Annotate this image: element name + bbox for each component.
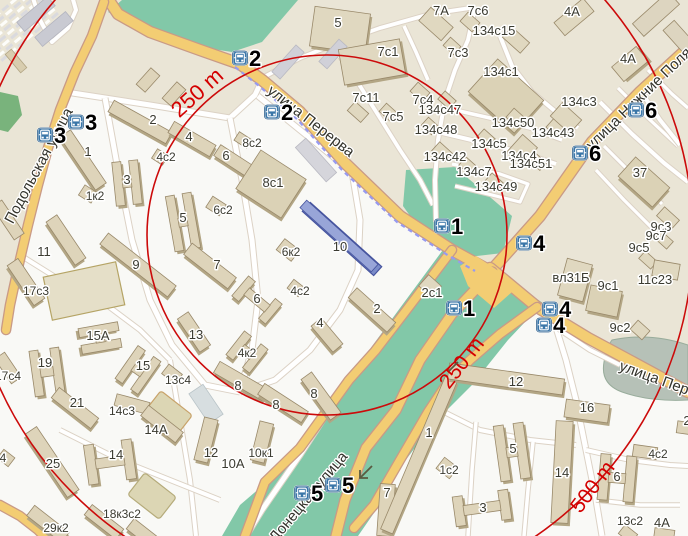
svg-text:12: 12 — [204, 445, 218, 460]
svg-text:7: 7 — [213, 257, 220, 272]
svg-text:9: 9 — [132, 257, 139, 272]
svg-text:11c23: 11c23 — [638, 272, 672, 287]
svg-text:134c49: 134c49 — [475, 179, 518, 194]
svg-text:14A: 14A — [144, 422, 167, 437]
svg-text:3: 3 — [85, 110, 97, 135]
svg-text:134c50: 134c50 — [492, 115, 535, 130]
svg-text:13: 13 — [189, 327, 203, 342]
svg-text:8: 8 — [234, 378, 241, 393]
svg-text:16: 16 — [580, 400, 594, 415]
svg-text:134c43: 134c43 — [532, 125, 575, 140]
svg-text:10: 10 — [333, 239, 347, 254]
svg-text:4A: 4A — [654, 515, 670, 530]
svg-text:2: 2 — [683, 413, 688, 428]
svg-text:10к1: 10к1 — [248, 446, 274, 460]
svg-text:1: 1 — [84, 144, 91, 159]
svg-text:7: 7 — [383, 485, 390, 500]
svg-text:7A: 7A — [433, 3, 449, 18]
svg-text:134c48: 134c48 — [415, 122, 458, 137]
svg-text:9c1: 9c1 — [598, 278, 619, 293]
svg-text:2: 2 — [281, 100, 293, 125]
svg-text:37: 37 — [633, 165, 647, 180]
svg-text:1к2: 1к2 — [86, 189, 105, 203]
svg-text:8: 8 — [272, 397, 279, 412]
svg-text:9c5: 9c5 — [629, 240, 650, 255]
svg-text:вл31Б: вл31Б — [552, 270, 589, 285]
svg-text:1c2: 1c2 — [439, 463, 459, 477]
svg-text:19: 19 — [38, 355, 52, 370]
svg-text:3: 3 — [479, 500, 486, 515]
svg-text:5: 5 — [334, 15, 341, 30]
svg-text:2: 2 — [373, 301, 380, 316]
svg-text:4к2: 4к2 — [238, 346, 257, 360]
svg-text:134c15: 134c15 — [473, 23, 516, 38]
svg-text:17c3: 17c3 — [23, 284, 49, 298]
svg-text:8c2: 8c2 — [242, 136, 262, 150]
svg-text:7c5: 7c5 — [383, 109, 404, 124]
svg-text:134c47: 134c47 — [419, 102, 462, 117]
svg-text:4c2: 4c2 — [290, 284, 310, 298]
svg-text:134c3: 134c3 — [561, 94, 596, 109]
svg-text:4: 4 — [0, 451, 7, 465]
svg-text:3: 3 — [123, 172, 130, 187]
svg-text:5: 5 — [509, 441, 516, 456]
svg-text:6: 6 — [645, 98, 657, 123]
svg-text:7c6: 7c6 — [468, 3, 489, 18]
svg-text:21: 21 — [70, 395, 84, 410]
svg-text:134c7: 134c7 — [456, 164, 491, 179]
svg-text:6: 6 — [589, 141, 601, 166]
svg-text:4: 4 — [553, 313, 566, 338]
svg-text:6к2: 6к2 — [282, 245, 301, 259]
svg-text:18к3с2: 18к3с2 — [103, 507, 141, 521]
svg-text:4A: 4A — [620, 51, 636, 66]
svg-text:11: 11 — [37, 244, 51, 259]
svg-text:8c1: 8c1 — [263, 175, 284, 190]
svg-text:1: 1 — [451, 214, 463, 239]
svg-text:6: 6 — [613, 469, 620, 484]
svg-text:4: 4 — [316, 315, 323, 330]
svg-text:14c3: 14c3 — [109, 404, 135, 418]
svg-text:4: 4 — [533, 231, 546, 256]
svg-text:4: 4 — [185, 129, 192, 144]
svg-text:134c1: 134c1 — [483, 64, 518, 79]
svg-text:6: 6 — [222, 148, 229, 163]
svg-text:2: 2 — [249, 46, 261, 71]
svg-text:14: 14 — [555, 465, 569, 480]
svg-text:14: 14 — [109, 447, 123, 462]
svg-text:2c1: 2c1 — [422, 285, 443, 300]
svg-text:7c3: 7c3 — [448, 45, 469, 60]
svg-text:15: 15 — [136, 358, 150, 373]
svg-text:7c1: 7c1 — [378, 44, 399, 59]
svg-text:9c2: 9c2 — [610, 320, 631, 335]
svg-text:5: 5 — [342, 473, 354, 498]
svg-text:13c4: 13c4 — [165, 373, 191, 387]
svg-text:4c2: 4c2 — [648, 447, 668, 461]
svg-text:13c2: 13c2 — [617, 514, 643, 528]
svg-text:17c4: 17c4 — [0, 369, 21, 383]
svg-text:134c51: 134c51 — [510, 156, 553, 171]
svg-text:5: 5 — [179, 210, 186, 225]
svg-text:134c42: 134c42 — [424, 149, 467, 164]
svg-text:10A: 10A — [221, 456, 244, 471]
svg-text:25: 25 — [46, 456, 60, 471]
svg-text:15A: 15A — [86, 328, 109, 343]
svg-text:2: 2 — [149, 112, 156, 127]
svg-text:1: 1 — [463, 296, 475, 321]
svg-text:3: 3 — [54, 123, 66, 148]
svg-text:4c2: 4c2 — [156, 150, 176, 164]
svg-text:29к2: 29к2 — [43, 521, 69, 535]
svg-text:5: 5 — [311, 481, 323, 506]
svg-text:7c11: 7c11 — [352, 90, 379, 105]
svg-text:8: 8 — [310, 386, 317, 401]
svg-text:12: 12 — [509, 374, 523, 389]
svg-text:4A: 4A — [564, 4, 580, 19]
svg-text:6: 6 — [253, 291, 260, 306]
svg-text:1: 1 — [425, 425, 432, 440]
svg-text:6c2: 6c2 — [213, 203, 233, 217]
